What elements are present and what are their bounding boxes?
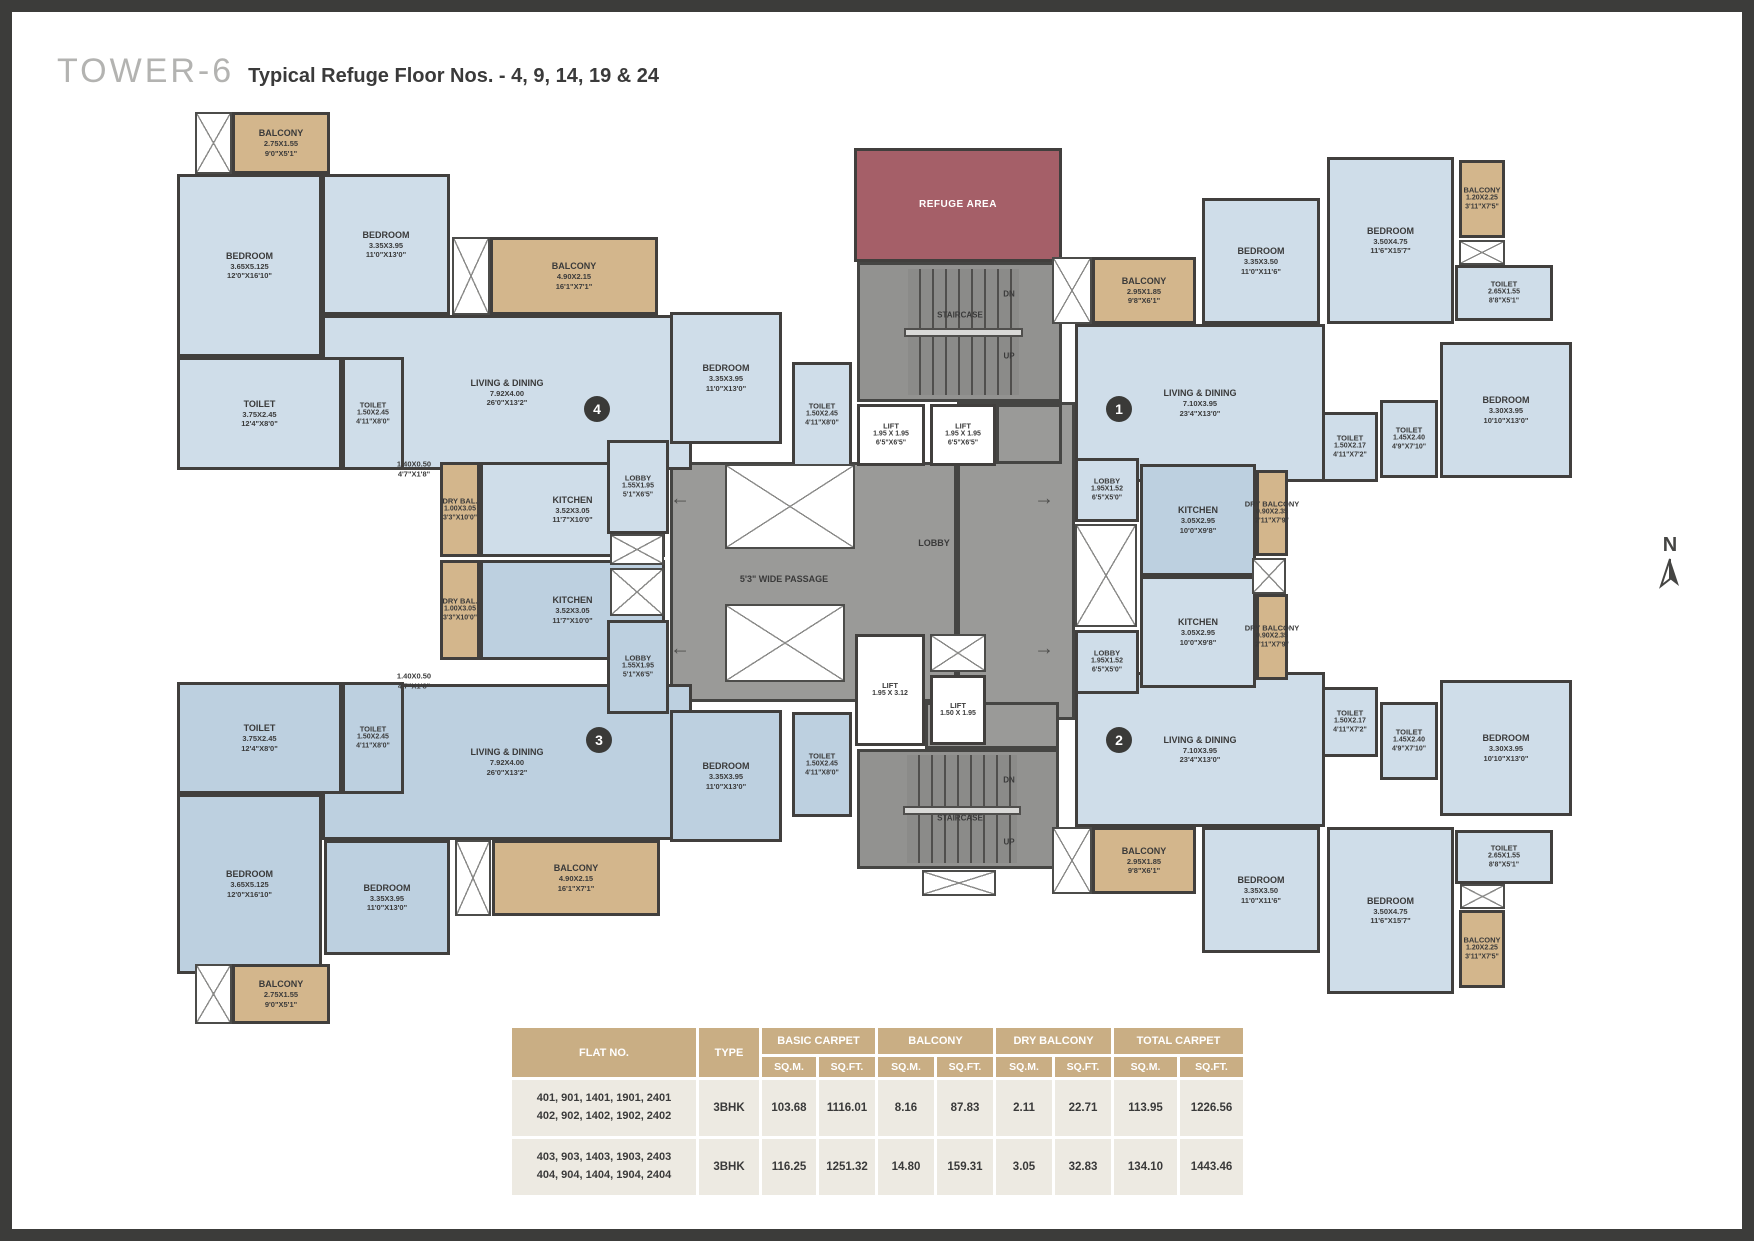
toilet-4c: TOILET1.50X2.454'11"X8'0"	[792, 362, 852, 467]
group-header-dry-balcony: DRY BALCONY	[996, 1028, 1111, 1054]
duct-shaft-14	[1052, 827, 1092, 894]
drybal-2: DRY BALCONY0.90X2.352'11"X7'9"	[1256, 594, 1288, 680]
group-header-basic-carpet: BASIC CARPET	[762, 1028, 875, 1054]
kitchen-2-label: KITCHEN3.05X2.9510'0"X9'8"	[1178, 617, 1218, 647]
duct-shaft-16	[195, 964, 232, 1024]
balcony-2b-label: BALCONY1.20X2.253'11"X7'5"	[1463, 936, 1500, 963]
subheader-sqm: SQ.M.	[1114, 1057, 1177, 1077]
area-value-r2-c6: 32.83	[1055, 1139, 1111, 1195]
type-header: TYPE	[699, 1028, 759, 1077]
area-value-r2-c7: 134.10	[1114, 1139, 1177, 1195]
duct-shaft-5	[725, 464, 855, 549]
bedroom-4b-label: BEDROOM3.35X3.9511'0"X13'0"	[363, 230, 410, 260]
drybal-1: DRY BALCONY0.90X2.352'11"X7'9"	[1256, 470, 1288, 556]
balcony-3a: BALCONY2.75X1.559'0"X5'1"	[232, 964, 330, 1024]
unit-number-badge-2: 2	[1106, 727, 1132, 753]
staircase-top	[857, 262, 1062, 402]
toilet-3c-label: TOILET1.50X2.454'11"X8'0"	[805, 751, 839, 778]
toilet-1b: TOILET1.45X2.404'9"X7'10"	[1380, 400, 1438, 478]
toilet-2b-label: TOILET1.45X2.404'9"X7'10"	[1392, 728, 1426, 755]
bedroom-1a: BEDROOM3.35X3.5011'0"X11'6"	[1202, 198, 1320, 324]
plan-text-lobby: LOBBY	[918, 538, 950, 548]
plan-text-staircase: STAIRCASE	[937, 311, 983, 320]
kitchen-4-label: KITCHEN3.52X3.0511'7"X10'0"	[552, 495, 592, 525]
toilet-1c-label: TOILET2.65X1.558'8"X5'1"	[1488, 280, 1520, 307]
bedroom-3c: BEDROOM3.35X3.9511'0"X13'0"	[670, 710, 782, 842]
drybal-1-label: DRY BALCONY0.90X2.352'11"X7'9"	[1245, 500, 1300, 527]
living-3-label: LIVING & DINING7.92X4.0026'0"X13'2"	[470, 747, 543, 777]
compass-north-label: N	[1650, 534, 1690, 557]
balcony-1b: BALCONY1.20X2.253'11"X7'5"	[1459, 160, 1505, 238]
passage-arrow-icon: →	[1034, 488, 1054, 511]
plan-text-up: UP	[1003, 838, 1014, 847]
unit-number-badge-3: 3	[586, 727, 612, 753]
area-value-r2-c5: 3.05	[996, 1139, 1052, 1195]
bedroom-2b: BEDROOM3.50X4.7511'6"X15'7"	[1327, 827, 1454, 994]
balcony-1b-label: BALCONY1.20X2.253'11"X7'5"	[1463, 186, 1500, 213]
staircase-bottom	[857, 749, 1059, 869]
balcony-4b: BALCONY4.90X2.1516'1"X7'1"	[490, 237, 658, 315]
gray-patch-lift	[996, 404, 1062, 464]
unit-number-badge-4: 4	[584, 396, 610, 422]
unit-number-badge-1: 1	[1106, 396, 1132, 422]
kitchen-1: KITCHEN3.05X2.9510'0"X9'8"	[1140, 464, 1256, 576]
toilet-3a-label: TOILET3.75X2.4512'4"X8'0"	[241, 723, 278, 753]
toilet-3a: TOILET3.75X2.4512'4"X8'0"	[177, 682, 342, 794]
drybal-3-label: DRY BAL.1.00X3.053'3"X10'0"	[442, 597, 477, 624]
area-value-r2-c8: 1443.46	[1180, 1139, 1243, 1195]
toilet-4c-label: TOILET1.50X2.454'11"X8'0"	[805, 401, 839, 428]
area-statement-table: FLAT NO.TYPEBASIC CARPETBALCONYDRY BALCO…	[512, 1028, 1243, 1195]
lift-1: LIFT1.95 X 1.956'5"X6'5"	[857, 404, 925, 466]
toilet-1b-label: TOILET1.45X2.404'9"X7'10"	[1392, 426, 1426, 453]
drybal-4: DRY BAL.1.00X3.053'3"X10'0"	[440, 462, 480, 557]
balcony-2b: BALCONY1.20X2.253'11"X7'5"	[1459, 910, 1505, 988]
area-value-r1-c4: 87.83	[937, 1080, 993, 1136]
passage-arrow-icon: →	[1034, 638, 1054, 661]
toilet-2b: TOILET1.45X2.404'9"X7'10"	[1380, 702, 1438, 780]
duct-shaft-12	[1252, 558, 1286, 594]
balcony-1a-label: BALCONY2.95X1.859'8"X6'1"	[1122, 276, 1167, 306]
lobby-3-label: LOBBY1.55X1.955'1"X6'5"	[622, 654, 654, 681]
balcony-3a-label: BALCONY2.75X1.559'0"X5'1"	[259, 979, 304, 1009]
area-value-r2-c4: 159.31	[937, 1139, 993, 1195]
lift-4: LIFT1.50 X 1.95	[930, 675, 986, 745]
drybal-3: DRY BAL.1.00X3.053'3"X10'0"	[440, 560, 480, 660]
toilet-1a: TOILET1.50X2.174'11"X7'2"	[1322, 412, 1378, 482]
area-value-r2-c3: 14.80	[878, 1139, 934, 1195]
refuge-area: REFUGE AREA	[854, 148, 1062, 262]
group-header-total-carpet: TOTAL CARPET	[1114, 1028, 1243, 1054]
toilet-1c: TOILET2.65X1.558'8"X5'1"	[1455, 265, 1553, 321]
duct-shaft-9	[1052, 257, 1092, 324]
area-value-r1-c2: 1116.01	[819, 1080, 875, 1136]
duct-shaft-13	[1460, 884, 1505, 909]
balcony-4a: BALCONY2.75X1.559'0"X5'1"	[232, 112, 330, 174]
lobby-3: LOBBY1.55X1.955'1"X6'5"	[607, 620, 669, 714]
toilet-1a-label: TOILET1.50X2.174'11"X7'2"	[1333, 434, 1367, 461]
lobby-1: LOBBY1.95X1.526'5"X5'0"	[1075, 458, 1139, 522]
toilet-4b-label: TOILET1.50X2.454'11"X8'0"	[356, 400, 390, 427]
lobby-4: LOBBY1.55X1.955'1"X6'5"	[607, 440, 669, 534]
duct-shaft-10	[1459, 240, 1505, 265]
living-1-label: LIVING & DINING7.10X3.9523'4"X13'0"	[1163, 388, 1236, 418]
plan-text-dn: DN	[1003, 776, 1015, 785]
area-value-r1-c3: 8.16	[878, 1080, 934, 1136]
lift-2-label: LIFT1.95 X 1.956'5"X6'5"	[945, 422, 981, 449]
flat-numbers-row-2: 403, 903, 1403, 1903, 2403404, 904, 1404…	[512, 1139, 696, 1195]
drybal-4-label: DRY BAL.1.00X3.053'3"X10'0"	[442, 496, 477, 523]
passage-arrow-icon: ←	[670, 638, 690, 661]
subheader-sqft: SQ.FT.	[937, 1057, 993, 1077]
plan-text-4-7-x1-8-: 4'7"X1'8"	[398, 470, 430, 479]
duct-shaft-6	[725, 604, 845, 682]
duct-shaft-1	[195, 112, 232, 174]
toilet-2c: TOILET2.65X1.558'8"X5'1"	[1455, 830, 1553, 884]
duct-shaft-15	[455, 840, 491, 916]
area-value-r1-c7: 113.95	[1114, 1080, 1177, 1136]
bedroom-1b: BEDROOM3.50X4.7511'6"X15'7"	[1327, 157, 1454, 324]
bedroom-1c: BEDROOM3.30X3.9510'10"X13'0"	[1440, 342, 1572, 478]
area-value-r1-c1: 103.68	[762, 1080, 816, 1136]
subheader-sqm: SQ.M.	[878, 1057, 934, 1077]
toilet-4b: TOILET1.50X2.454'11"X8'0"	[342, 357, 404, 470]
lobby-2: LOBBY1.95X1.526'5"X5'0"	[1075, 630, 1139, 694]
lobby-4-label: LOBBY1.55X1.955'1"X6'5"	[622, 474, 654, 501]
duct-shaft-11	[1075, 524, 1137, 627]
bedroom-3b: BEDROOM3.35X3.9511'0"X13'0"	[324, 840, 450, 955]
lift-1-label: LIFT1.95 X 1.956'5"X6'5"	[873, 422, 909, 449]
bedroom-1a-label: BEDROOM3.35X3.5011'0"X11'6"	[1238, 246, 1285, 276]
subheader-sqft: SQ.FT.	[819, 1057, 875, 1077]
passage-arrow-icon: ←	[670, 488, 690, 511]
bedroom-2c: BEDROOM3.30X3.9510'10"X13'0"	[1440, 680, 1572, 816]
toilet-2c-label: TOILET2.65X1.558'8"X5'1"	[1488, 844, 1520, 871]
north-arrow-icon	[1657, 557, 1683, 589]
toilet-4a: TOILET3.75X2.4512'4"X8'0"	[177, 357, 342, 470]
balcony-4b-label: BALCONY4.90X2.1516'1"X7'1"	[552, 261, 597, 291]
plan-text-up: UP	[1003, 352, 1014, 361]
toilet-3b: TOILET1.50X2.454'11"X8'0"	[342, 682, 404, 794]
refuge-area-label: REFUGE AREA	[919, 199, 997, 212]
bedroom-2a: BEDROOM3.35X3.5011'0"X11'6"	[1202, 827, 1320, 953]
kitchen-1-label: KITCHEN3.05X2.9510'0"X9'8"	[1178, 505, 1218, 535]
subheader-sqft: SQ.FT.	[1055, 1057, 1111, 1077]
bedroom-4c-label: BEDROOM3.35X3.9511'0"X13'0"	[703, 363, 750, 393]
toilet-2a: TOILET1.50X2.174'11"X7'2"	[1322, 687, 1378, 757]
group-header-balcony: BALCONY	[878, 1028, 993, 1054]
stair-landing	[904, 328, 1023, 337]
lift-3-label: LIFT1.95 X 3.12	[872, 681, 908, 699]
kitchen-3-label: KITCHEN3.52X3.0511'7"X10'0"	[552, 595, 592, 625]
lift-4-label: LIFT1.50 X 1.95	[940, 701, 976, 719]
floor-plan-page: TOWER-6 Typical Refuge Floor Nos. - 4, 9…	[0, 0, 1754, 1241]
toilet-3b-label: TOILET1.50X2.454'11"X8'0"	[356, 725, 390, 752]
plan-text-staircase: STAIRCASE	[937, 814, 983, 823]
balcony-3b: BALCONY4.90X2.1516'1"X7'1"	[492, 840, 660, 916]
bedroom-1c-label: BEDROOM3.30X3.9510'10"X13'0"	[1483, 395, 1530, 425]
bedroom-4b: BEDROOM3.35X3.9511'0"X13'0"	[322, 174, 450, 315]
toilet-2a-label: TOILET1.50X2.174'11"X7'2"	[1333, 709, 1367, 736]
flat-no-header: FLAT NO.	[512, 1028, 696, 1077]
area-value-r2-c2: 1251.32	[819, 1139, 875, 1195]
bedroom-3a: BEDROOM3.65X5.12512'0"X16'10"	[177, 794, 322, 974]
lobby-1-label: LOBBY1.95X1.526'5"X5'0"	[1091, 477, 1123, 504]
bedroom-4c: BEDROOM3.35X3.9511'0"X13'0"	[670, 312, 782, 444]
balcony-3b-label: BALCONY4.90X2.1516'1"X7'1"	[554, 863, 599, 893]
north-compass: N	[1650, 534, 1690, 589]
lift-3: LIFT1.95 X 3.12	[855, 634, 925, 746]
plan-text-4-7-x1-8-: 4'7"X1'8"	[398, 682, 430, 691]
area-value-r1-c5: 2.11	[996, 1080, 1052, 1136]
balcony-4a-label: BALCONY2.75X1.559'0"X5'1"	[259, 128, 304, 158]
plan-text-1-40x0-50: 1.40X0.50	[397, 460, 431, 469]
subheader-sqft: SQ.FT.	[1180, 1057, 1243, 1077]
duct-shaft-4	[610, 568, 664, 616]
bedroom-4a-label: BEDROOM3.65X5.12512'0"X16'10"	[226, 251, 273, 281]
bedroom-2b-label: BEDROOM3.50X4.7511'6"X15'7"	[1367, 896, 1414, 926]
toilet-3c: TOILET1.50X2.454'11"X8'0"	[792, 712, 852, 817]
bedroom-3a-label: BEDROOM3.65X5.12512'0"X16'10"	[226, 869, 273, 899]
bedroom-3c-label: BEDROOM3.35X3.9511'0"X13'0"	[703, 761, 750, 791]
duct-shaft-2	[452, 237, 490, 315]
lift-2: LIFT1.95 X 1.956'5"X6'5"	[930, 404, 996, 466]
living-4-label: LIVING & DINING7.92X4.0026'0"X13'2"	[470, 378, 543, 408]
living-2-label: LIVING & DINING7.10X3.9523'4"X13'0"	[1163, 735, 1236, 765]
balcony-2a: BALCONY2.95X1.859'8"X6'1"	[1092, 827, 1196, 894]
area-value-r1-c8: 1226.56	[1180, 1080, 1243, 1136]
duct-shaft-7	[930, 634, 986, 672]
balcony-2a-label: BALCONY2.95X1.859'8"X6'1"	[1122, 846, 1167, 876]
plan-text-1-40x0-50: 1.40X0.50	[397, 672, 431, 681]
balcony-1a: BALCONY2.95X1.859'8"X6'1"	[1092, 257, 1196, 324]
area-value-r1-c6: 22.71	[1055, 1080, 1111, 1136]
flat-type-row-1: 3BHK	[699, 1080, 759, 1136]
kitchen-2: KITCHEN3.05X2.9510'0"X9'8"	[1140, 576, 1256, 688]
plan-text-dn: DN	[1003, 290, 1015, 299]
area-value-r2-c1: 116.25	[762, 1139, 816, 1195]
bedroom-1b-label: BEDROOM3.50X4.7511'6"X15'7"	[1367, 226, 1414, 256]
flat-numbers-row-1: 401, 901, 1401, 1901, 2401402, 902, 1402…	[512, 1080, 696, 1136]
toilet-4a-label: TOILET3.75X2.4512'4"X8'0"	[241, 399, 278, 429]
bedroom-2c-label: BEDROOM3.30X3.9510'10"X13'0"	[1483, 733, 1530, 763]
subheader-sqm: SQ.M.	[762, 1057, 816, 1077]
drybal-2-label: DRY BALCONY0.90X2.352'11"X7'9"	[1245, 624, 1300, 651]
duct-shaft-8	[922, 870, 996, 896]
subheader-sqm: SQ.M.	[996, 1057, 1052, 1077]
duct-shaft-3	[610, 534, 664, 565]
plan-text-5-3-wide-passage: 5'3" WIDE PASSAGE	[740, 574, 828, 584]
bedroom-2a-label: BEDROOM3.35X3.5011'0"X11'6"	[1238, 875, 1285, 905]
lobby-2-label: LOBBY1.95X1.526'5"X5'0"	[1091, 649, 1123, 676]
bedroom-3b-label: BEDROOM3.35X3.9511'0"X13'0"	[364, 883, 411, 913]
bedroom-4a: BEDROOM3.65X5.12512'0"X16'10"	[177, 174, 322, 357]
flat-type-row-2: 3BHK	[699, 1139, 759, 1195]
